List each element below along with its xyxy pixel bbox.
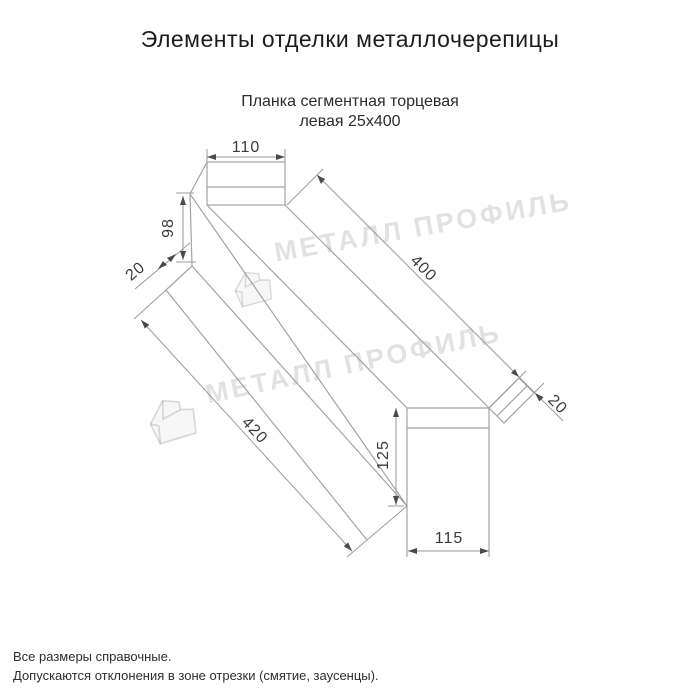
shape-outline (166, 162, 534, 557)
drawing-subtitle-line1: Планка сегментная торцевая (0, 93, 700, 111)
dim-label-right-face-width: 115 (435, 530, 464, 548)
footer-note-1: Все размеры справочные. (13, 649, 171, 664)
drawing-subtitle-line2: левая 25х400 (0, 113, 700, 131)
dim-label-left-face-height: 98 (160, 218, 178, 238)
dim-label-top-flange-width: 110 (232, 139, 261, 157)
page: МЕТАЛЛ ПРОФИЛЬ МЕТАЛЛ ПРОФИЛЬ (0, 0, 700, 700)
dimension-lines (134, 149, 563, 557)
dim-label-right-face-height: 125 (375, 440, 393, 470)
page-title: Элементы отделки металлочерепицы (0, 26, 700, 53)
dimension-arrows (141, 154, 544, 554)
footer-note-2: Допускаются отклонения в зоне отрезки (с… (13, 668, 379, 683)
